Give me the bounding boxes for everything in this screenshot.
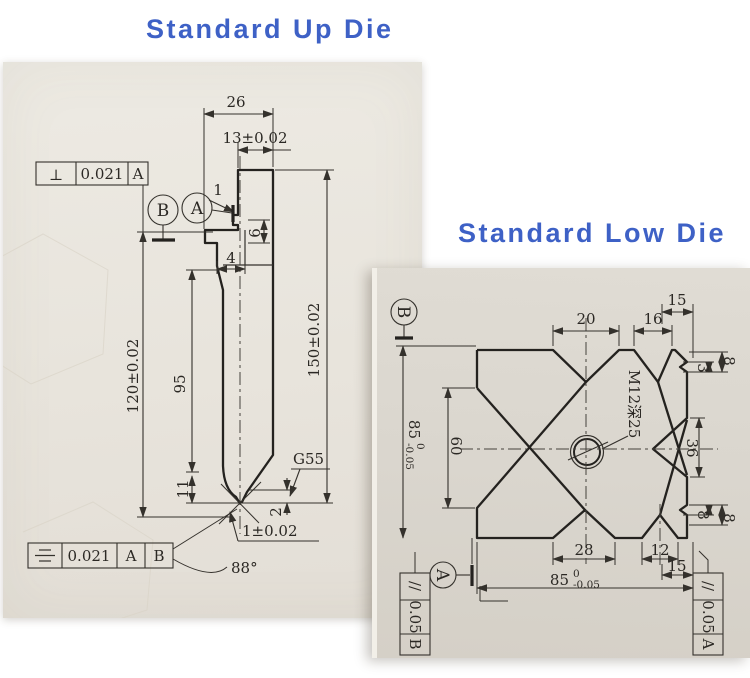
- up-die-dimensions: 26 13±0.02 1 6 4: [124, 93, 334, 577]
- dim-85-left-lower-tol: -0.05: [403, 443, 415, 470]
- thread-callout: M12深25: [625, 370, 643, 439]
- dim-3-topright: 3: [694, 363, 712, 373]
- fcf-top-datum: A: [132, 165, 144, 183]
- dim-8-bottomright-inner: 8: [694, 510, 712, 520]
- fcf-perpendicularity: ⊥ 0.021 A: [36, 162, 148, 232]
- dim-85-bottom-lower-tol: -0.05: [573, 579, 600, 591]
- center-hole: [568, 436, 608, 469]
- datum-target-b: B: [148, 195, 178, 240]
- dim-8-topright: 8: [720, 356, 738, 366]
- dim-15-top: 15: [667, 291, 686, 309]
- fcf-bottom-value: 0.021: [68, 547, 111, 565]
- dim-angle-88: 88°: [231, 559, 258, 577]
- fcf-parallelism-right: // 0.05 A: [693, 551, 723, 655]
- fcf-right-datum: A: [699, 638, 717, 650]
- dim-28: 28: [574, 541, 593, 559]
- datum-a-label: A: [190, 199, 204, 219]
- dim-13: 13±0.02: [222, 129, 287, 147]
- low-datum-a-label: A: [432, 568, 452, 582]
- fcf-left-symbol: //: [406, 581, 424, 592]
- fcf-bottom-datum-1: A: [125, 547, 137, 565]
- low-die-drawing: 20 16 15 3 8: [377, 268, 750, 658]
- datum-b-label: B: [157, 201, 170, 221]
- dim-2: 2: [267, 507, 285, 517]
- page: Standard Up Die Standard Low Die: [0, 0, 750, 678]
- dim-tip-width: 1±0.02: [242, 522, 298, 540]
- fcf-parallelism-left: // 0.05 B: [400, 552, 430, 655]
- perpendicularity-icon: ⊥: [49, 166, 63, 184]
- dim-60: 60: [447, 436, 465, 455]
- dim-1-notch: 1: [213, 181, 223, 199]
- fcf-left-datum: B: [406, 638, 424, 649]
- up-die-photo: 26 13±0.02 1 6 4: [3, 62, 422, 618]
- dim-85-bottom: 85: [550, 571, 569, 589]
- title-standard-low-die: Standard Low Die: [458, 218, 726, 249]
- up-die-drawing: 26 13±0.02 1 6 4: [3, 62, 422, 618]
- low-die-photo: 20 16 15 3 8: [372, 268, 750, 658]
- dim-16: 16: [643, 310, 662, 328]
- dim-120: 120±0.02: [124, 339, 142, 414]
- datum-target-b-low: B: [391, 299, 417, 338]
- dim-95: 95: [171, 374, 189, 393]
- fcf-right-symbol: //: [699, 581, 717, 592]
- title-standard-up-die: Standard Up Die: [146, 14, 394, 45]
- fcf-bottom-datum-2: B: [153, 547, 164, 565]
- dim-11: 11: [174, 479, 192, 498]
- low-die-dimensions: 20 16 15 3 8: [396, 291, 738, 594]
- low-datum-b-label: B: [393, 306, 413, 319]
- dim-85-left: 85: [405, 420, 423, 439]
- fcf-left-value: 0.05: [406, 600, 424, 633]
- fcf-right-value: 0.05: [699, 600, 717, 633]
- dim-20: 20: [576, 310, 595, 328]
- symmetry-icon: [35, 550, 55, 561]
- dim-150: 150±0.02: [305, 303, 323, 378]
- dim-6: 6: [246, 228, 264, 238]
- dim-15-bottom: 15: [667, 557, 686, 575]
- low-die-outline: [477, 350, 687, 538]
- dim-8-bottomright-outer: 8: [720, 513, 738, 523]
- dim-36: 36: [683, 438, 701, 457]
- datum-target-a-low: A: [430, 538, 508, 601]
- dim-26: 26: [226, 93, 245, 111]
- label-g55: G55: [293, 450, 324, 468]
- fcf-top-value: 0.021: [81, 165, 124, 183]
- dim-4: 4: [226, 249, 236, 267]
